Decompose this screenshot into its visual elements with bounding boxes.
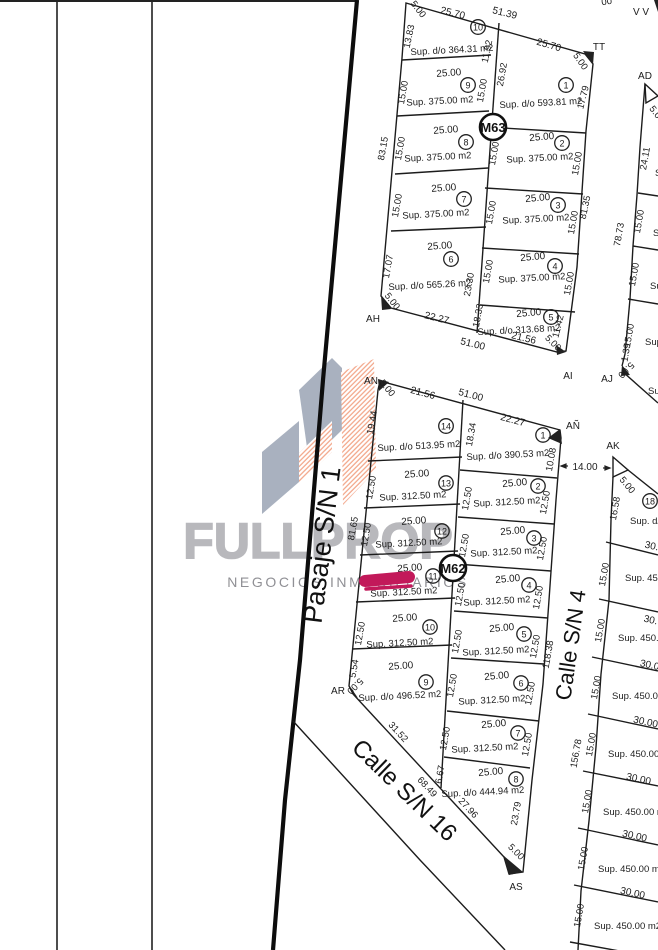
svg-text:5.00: 5.00 <box>615 359 636 380</box>
svg-text:Sup. 312.50 m2: Sup. 312.50 m2 <box>451 741 519 755</box>
svg-text:30.: 30. <box>643 614 658 628</box>
svg-text:8: 8 <box>513 775 518 785</box>
svg-text:Sup: Sup <box>645 337 658 348</box>
svg-text:25.00: 25.00 <box>404 468 430 481</box>
svg-text:30.0: 30.0 <box>639 658 658 673</box>
svg-text:9: 9 <box>423 678 428 688</box>
svg-text:9: 9 <box>465 81 470 91</box>
svg-text:25.00: 25.00 <box>495 573 521 586</box>
svg-text:AJ: AJ <box>601 374 613 385</box>
svg-text:Sup. 375.00 m2: Sup. 375.00 m2 <box>406 94 474 108</box>
svg-text:51.39: 51.39 <box>491 5 518 22</box>
svg-text:Sup. 375.00 m2: Sup. 375.00 m2 <box>502 212 570 226</box>
svg-text:25.00: 25.00 <box>431 182 457 195</box>
svg-text:00: 00 <box>600 0 612 7</box>
svg-text:Sup. 450.00 m: Sup. 450.00 m <box>603 807 658 818</box>
svg-text:10: 10 <box>473 23 483 33</box>
svg-text:V V: V V <box>633 7 649 18</box>
svg-text:Sup. 312.50 m2: Sup. 312.50 m2 <box>463 594 531 608</box>
svg-text:15.00: 15.00 <box>593 618 608 643</box>
svg-text:5.54: 5.54 <box>348 659 362 679</box>
svg-text:118.38: 118.38 <box>541 640 557 670</box>
svg-text:18.34: 18.34 <box>464 422 479 447</box>
svg-text:3: 3 <box>531 534 536 544</box>
svg-text:15.00: 15.00 <box>572 903 587 928</box>
svg-text:Calle S/N 4: Calle S/N 4 <box>550 588 590 702</box>
svg-text:Sup. 312.50 m2: Sup. 312.50 m2 <box>379 489 447 503</box>
svg-text:5.00: 5.00 <box>408 0 428 20</box>
svg-text:8: 8 <box>463 138 468 148</box>
svg-text:25.00: 25.00 <box>489 622 515 635</box>
svg-text:15.00: 15.00 <box>481 259 496 284</box>
svg-text:Sup. d/o 565.26 m2: Sup. d/o 565.26 m2 <box>388 278 471 293</box>
svg-text:Sup. 375.00 m2: Sup. 375.00 m2 <box>404 150 472 164</box>
svg-text:15.00: 15.00 <box>632 209 647 234</box>
svg-text:4: 4 <box>526 581 531 591</box>
svg-text:25.00: 25.00 <box>484 670 510 683</box>
svg-text:M63: M63 <box>480 120 505 135</box>
svg-text:Sup. 45: Sup. 45 <box>625 573 658 584</box>
svg-text:AK: AK <box>606 441 620 452</box>
svg-text:16.58: 16.58 <box>608 496 623 521</box>
svg-text:81.35: 81.35 <box>578 195 594 221</box>
svg-text:2: 2 <box>559 139 564 149</box>
svg-text:AN: AN <box>364 376 378 387</box>
svg-text:2: 2 <box>535 482 540 492</box>
svg-text:Sup. 312.50 m2: Sup. 312.50 m2 <box>470 545 538 559</box>
svg-text:15.00: 15.00 <box>576 846 591 871</box>
svg-text:51.00: 51.00 <box>459 336 486 353</box>
svg-text:Sup. d/o 513.95 m2: Sup. d/o 513.95 m2 <box>377 439 460 454</box>
svg-text:1: 1 <box>563 81 568 91</box>
svg-text:6: 6 <box>518 679 523 689</box>
svg-text:30.00: 30.00 <box>625 772 652 788</box>
svg-text:25.00: 25.00 <box>500 525 526 538</box>
svg-text:5: 5 <box>521 630 526 640</box>
svg-text:156.78: 156.78 <box>569 738 585 769</box>
svg-text:1.39: 1.39 <box>620 343 634 363</box>
svg-text:Sup. d/o 3: Sup. d/o 3 <box>630 516 658 527</box>
svg-text:25.70: 25.70 <box>439 5 466 22</box>
svg-text:5.00: 5.00 <box>617 475 637 496</box>
svg-text:14.00: 14.00 <box>572 462 597 473</box>
svg-text:Sup. d/o 390.53 m2: Sup. d/o 390.53 m2 <box>466 448 549 463</box>
svg-text:Sup. 312.50 m2: Sup. 312.50 m2 <box>462 644 530 658</box>
svg-text:25.00: 25.00 <box>481 718 507 731</box>
svg-text:M62: M62 <box>440 561 465 576</box>
svg-text:11: 11 <box>428 572 437 582</box>
svg-text:25.00: 25.00 <box>427 240 453 253</box>
svg-text:Sup: Sup <box>648 386 658 397</box>
svg-text:10: 10 <box>425 623 435 633</box>
svg-text:6: 6 <box>448 255 453 265</box>
svg-text:17.07: 17.07 <box>381 254 396 279</box>
svg-text:22.27: 22.27 <box>499 412 526 429</box>
svg-text:5.00: 5.00 <box>505 842 526 863</box>
svg-text:AI: AI <box>563 371 572 382</box>
svg-text:Sup. 375.00 m2: Sup. 375.00 m2 <box>498 271 566 285</box>
svg-text:25.00: 25.00 <box>516 307 542 320</box>
svg-text:5.0: 5.0 <box>647 104 658 121</box>
svg-text:78.73: 78.73 <box>612 222 627 247</box>
svg-text:S: S <box>653 228 658 239</box>
svg-text:Sup. d/o 593.81 m2: Sup. d/o 593.81 m2 <box>499 96 582 111</box>
svg-text:12: 12 <box>437 527 447 537</box>
svg-text:22.27: 22.27 <box>423 310 450 327</box>
svg-text:15.00: 15.00 <box>580 789 595 814</box>
svg-text:Sup. 450.0: Sup. 450.0 <box>612 691 658 702</box>
svg-text:25.70: 25.70 <box>535 37 563 55</box>
svg-text:25.00: 25.00 <box>392 612 418 625</box>
svg-text:30.00: 30.00 <box>632 715 658 731</box>
svg-text:15.00: 15.00 <box>627 262 642 287</box>
svg-text:5: 5 <box>548 313 553 323</box>
svg-text:25.00: 25.00 <box>525 192 551 205</box>
svg-text:15.00: 15.00 <box>487 141 502 166</box>
svg-text:Sup. 312.50 m2: Sup. 312.50 m2 <box>458 693 526 707</box>
svg-text:AÑ: AÑ <box>566 419 580 432</box>
svg-text:Sup. 312.50 m2: Sup. 312.50 m2 <box>473 495 541 509</box>
svg-text:AS: AS <box>509 882 523 893</box>
svg-text:AD: AD <box>638 71 652 82</box>
svg-text:Sup. d/o 444.94 m2: Sup. d/o 444.94 m2 <box>441 785 524 800</box>
svg-text:7: 7 <box>515 729 520 739</box>
svg-text:15.00: 15.00 <box>584 732 599 757</box>
svg-text:6.67: 6.67 <box>434 765 448 785</box>
svg-text:15.00: 15.00 <box>589 675 604 700</box>
svg-text:Sup. 375.00 m2: Sup. 375.00 m2 <box>506 151 574 165</box>
svg-text:1: 1 <box>540 431 545 441</box>
svg-text:25.00: 25.00 <box>529 131 555 144</box>
svg-text:23.79: 23.79 <box>509 801 524 826</box>
svg-text:25.00: 25.00 <box>401 515 427 528</box>
svg-text:12.50: 12.50 <box>531 585 546 610</box>
svg-text:12.50: 12.50 <box>535 536 550 561</box>
svg-text:30.00: 30.00 <box>621 829 648 845</box>
svg-text:25.00: 25.00 <box>436 67 462 80</box>
svg-text:Sup. 450.: Sup. 450. <box>618 633 658 644</box>
svg-text:25.00: 25.00 <box>433 124 459 137</box>
svg-text:Su: Su <box>650 281 658 292</box>
svg-text:AR: AR <box>331 686 345 697</box>
svg-text:14: 14 <box>441 422 451 432</box>
svg-text:26.92: 26.92 <box>495 62 510 87</box>
svg-text:7: 7 <box>461 195 466 205</box>
svg-text:AH: AH <box>366 314 380 325</box>
svg-text:13: 13 <box>441 479 451 489</box>
svg-text:Sup. d/o 496.52 m2: Sup. d/o 496.52 m2 <box>358 689 441 704</box>
svg-text:25.00: 25.00 <box>478 766 504 779</box>
svg-text:21.56: 21.56 <box>409 385 436 402</box>
svg-text:18: 18 <box>645 497 655 507</box>
svg-text:Sup. 375.00 m2: Sup. 375.00 m2 <box>402 207 470 221</box>
svg-text:25.00: 25.00 <box>520 251 546 264</box>
svg-text:Sup. 450.00: Sup. 450.00 <box>608 749 658 760</box>
svg-text:18.33: 18.33 <box>471 303 486 328</box>
svg-text:Sup. 450.00 m2: Sup. 450.00 m2 <box>594 921 658 932</box>
svg-text:83.15: 83.15 <box>376 136 391 161</box>
svg-text:3: 3 <box>555 201 560 211</box>
svg-text:51.00: 51.00 <box>457 387 484 404</box>
svg-text:15.00: 15.00 <box>475 78 490 103</box>
svg-text:30.00: 30.00 <box>619 886 646 902</box>
svg-text:Sup. 450.00 m2: Sup. 450.00 m2 <box>598 864 658 875</box>
svg-text:12.50: 12.50 <box>520 732 535 757</box>
svg-text:4: 4 <box>552 262 557 272</box>
svg-text:25.00: 25.00 <box>388 660 414 673</box>
svg-text:Sup. 312.50 m2: Sup. 312.50 m2 <box>366 636 434 650</box>
svg-text:25.00: 25.00 <box>502 477 528 490</box>
svg-text:TT: TT <box>593 42 605 53</box>
